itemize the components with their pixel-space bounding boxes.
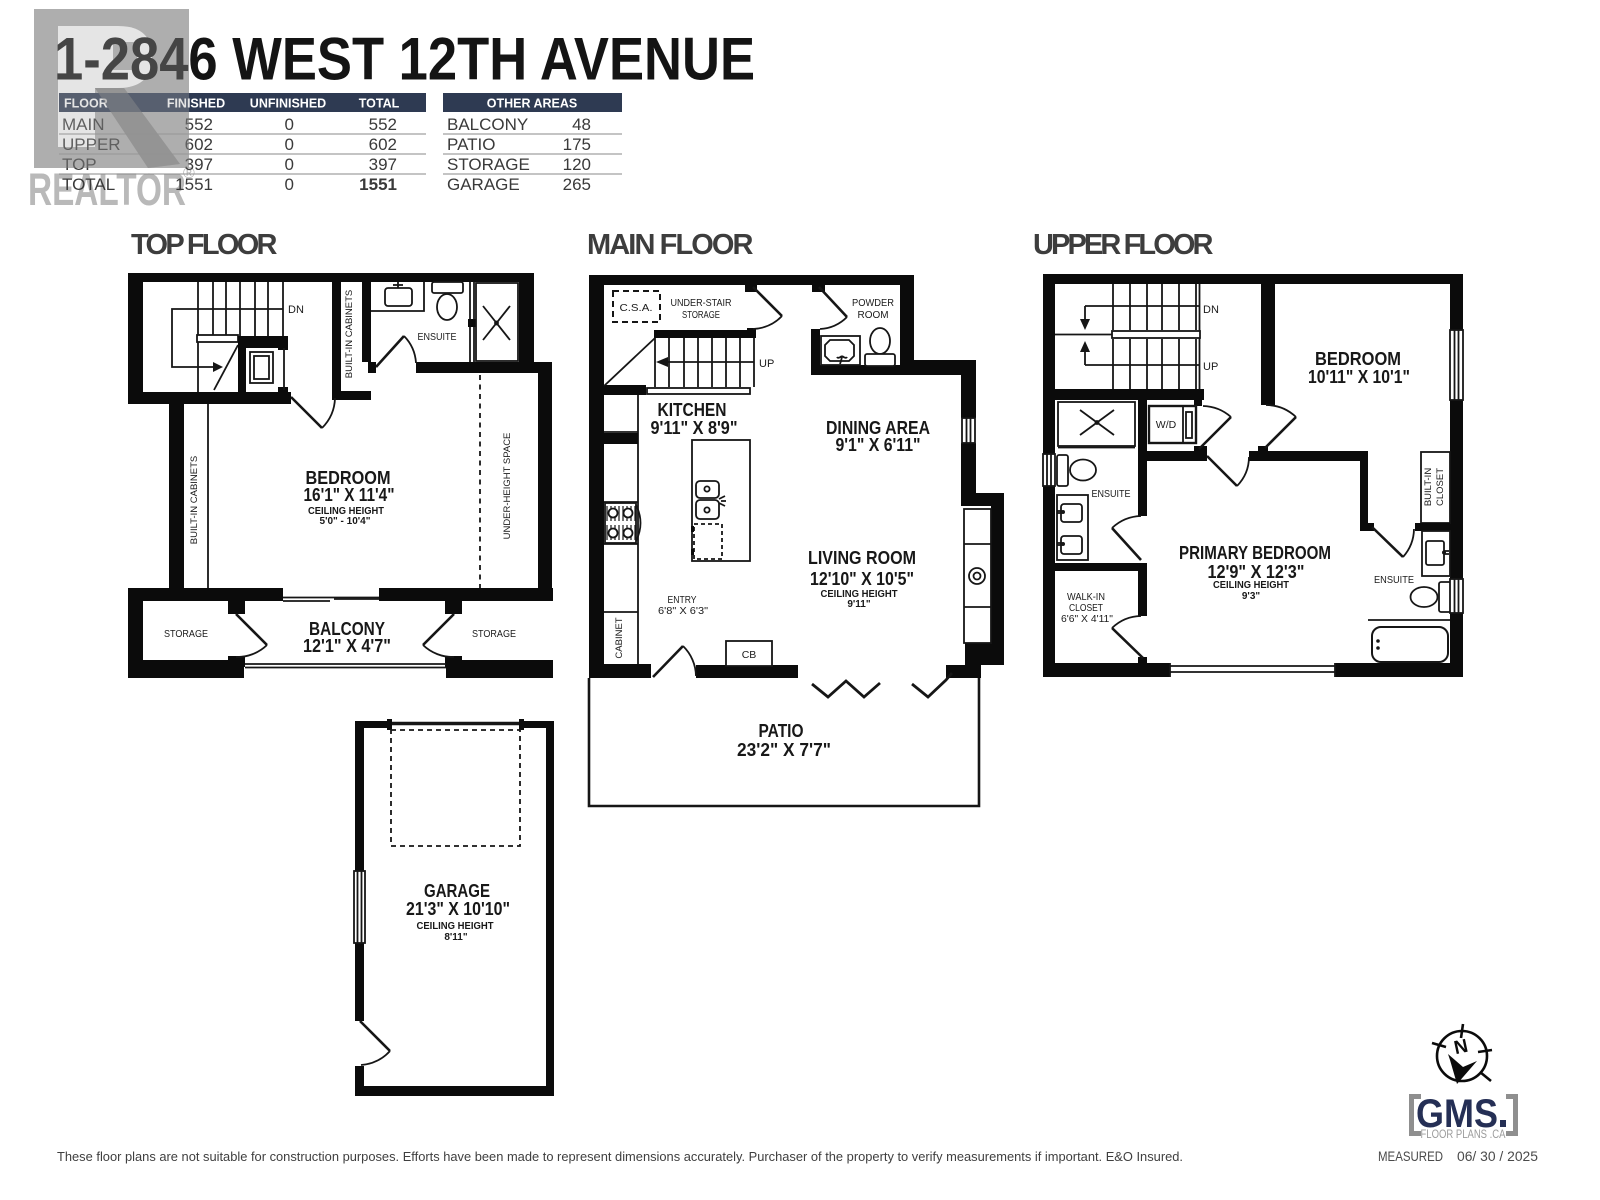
svg-text:12'10" X 10'5": 12'10" X 10'5" — [810, 568, 914, 589]
svg-text:8'11": 8'11" — [444, 932, 468, 943]
svg-text:BALCONY: BALCONY — [447, 115, 528, 134]
svg-text:UP: UP — [759, 358, 774, 370]
svg-text:STORAGE: STORAGE — [447, 155, 530, 174]
svg-text:STORAGE: STORAGE — [164, 628, 208, 640]
svg-text:9'1" X 6'11": 9'1" X 6'11" — [836, 434, 921, 455]
svg-text:602: 602 — [369, 135, 397, 154]
svg-text:TOP FLOOR: TOP FLOOR — [131, 229, 278, 261]
svg-text:TOTAL: TOTAL — [62, 175, 115, 194]
svg-text:06/ 30 / 2025: 06/ 30 / 2025 — [1457, 1149, 1538, 1164]
svg-text:5'0" - 10'4": 5'0" - 10'4" — [320, 516, 371, 527]
svg-text:120: 120 — [563, 155, 591, 174]
svg-text:STORAGE: STORAGE — [472, 628, 516, 640]
svg-text:16'1" X 11'4": 16'1" X 11'4" — [304, 484, 395, 505]
svg-text:6'8" X 6'3": 6'8" X 6'3" — [658, 605, 708, 617]
svg-text:MEASURED: MEASURED — [1378, 1149, 1443, 1164]
svg-text:UPPER FLOOR: UPPER FLOOR — [1033, 229, 1214, 261]
svg-text:1551: 1551 — [359, 175, 397, 194]
svg-text:OTHER AREAS: OTHER AREAS — [487, 97, 578, 111]
svg-text:These floor plans are not suit: These floor plans are not suitable for c… — [57, 1149, 1183, 1164]
svg-text:PATIO: PATIO — [447, 135, 496, 154]
svg-text:552: 552 — [369, 115, 397, 134]
svg-text:DN: DN — [1203, 304, 1219, 316]
svg-text:10'11" X 10'1": 10'11" X 10'1" — [1308, 366, 1410, 387]
svg-text:CABINET: CABINET — [614, 617, 625, 658]
svg-text:GARAGE: GARAGE — [447, 175, 520, 194]
svg-text:TOTAL: TOTAL — [359, 97, 400, 111]
svg-text:LIVING ROOM: LIVING ROOM — [808, 548, 916, 568]
svg-text:0: 0 — [285, 115, 294, 134]
svg-text:ENSUITE: ENSUITE — [1092, 488, 1131, 500]
svg-text:397: 397 — [369, 155, 397, 174]
svg-text:9'11" X 8'9": 9'11" X 8'9" — [651, 417, 738, 438]
svg-text:C.S.A.: C.S.A. — [620, 302, 653, 314]
svg-text:UP: UP — [1203, 361, 1218, 373]
svg-text:175: 175 — [563, 135, 591, 154]
svg-text:1551: 1551 — [175, 175, 213, 194]
svg-text:BUILT-IN: BUILT-IN — [1423, 468, 1434, 506]
svg-text:ENSUITE: ENSUITE — [418, 331, 457, 343]
svg-text:ROOM: ROOM — [858, 309, 889, 321]
svg-text:265: 265 — [563, 175, 591, 194]
svg-text:0: 0 — [285, 175, 294, 194]
svg-text:ENSUITE: ENSUITE — [1374, 574, 1414, 586]
svg-text:DN: DN — [288, 304, 304, 316]
svg-text:W/D: W/D — [1156, 419, 1177, 431]
svg-text:UNDER-STAIR: UNDER-STAIR — [671, 297, 732, 309]
svg-text:CB: CB — [742, 649, 757, 661]
svg-text:POWDER: POWDER — [852, 297, 894, 309]
svg-text:48: 48 — [572, 115, 591, 134]
svg-text:9'11": 9'11" — [847, 599, 871, 610]
svg-text:UNFINISHED: UNFINISHED — [250, 97, 326, 111]
svg-text:CEILING HEIGHT: CEILING HEIGHT — [417, 921, 494, 932]
svg-text:6'6" X 4'11": 6'6" X 4'11" — [1061, 613, 1113, 625]
svg-text:BUILT-IN CABINETS: BUILT-IN CABINETS — [189, 456, 200, 545]
svg-text:PRIMARY BEDROOM: PRIMARY BEDROOM — [1179, 543, 1331, 563]
svg-text:STORAGE: STORAGE — [682, 309, 720, 321]
svg-text:12'9" X 12'3": 12'9" X 12'3" — [1208, 561, 1305, 582]
svg-text:UNDER-HEIGHT SPACE: UNDER-HEIGHT SPACE — [502, 433, 513, 540]
svg-text:0: 0 — [285, 155, 294, 174]
svg-text:21'3" X 10'10": 21'3" X 10'10" — [406, 898, 510, 919]
svg-text:23'2" X 7'7": 23'2" X 7'7" — [737, 739, 831, 760]
svg-text:BUILT-IN CABINETS: BUILT-IN CABINETS — [344, 290, 355, 379]
svg-text:0: 0 — [285, 135, 294, 154]
svg-text:12'1" X 4'7": 12'1" X 4'7" — [303, 635, 391, 656]
svg-text:9'3": 9'3" — [1242, 591, 1261, 602]
svg-text:FLOOR PLANS .CA: FLOOR PLANS .CA — [1421, 1129, 1506, 1141]
svg-text:CEILING HEIGHT: CEILING HEIGHT — [1213, 580, 1289, 591]
svg-text:MAIN FLOOR: MAIN FLOOR — [587, 229, 754, 261]
svg-text:PATIO: PATIO — [759, 721, 804, 741]
svg-text:CLOSET: CLOSET — [1435, 468, 1446, 506]
